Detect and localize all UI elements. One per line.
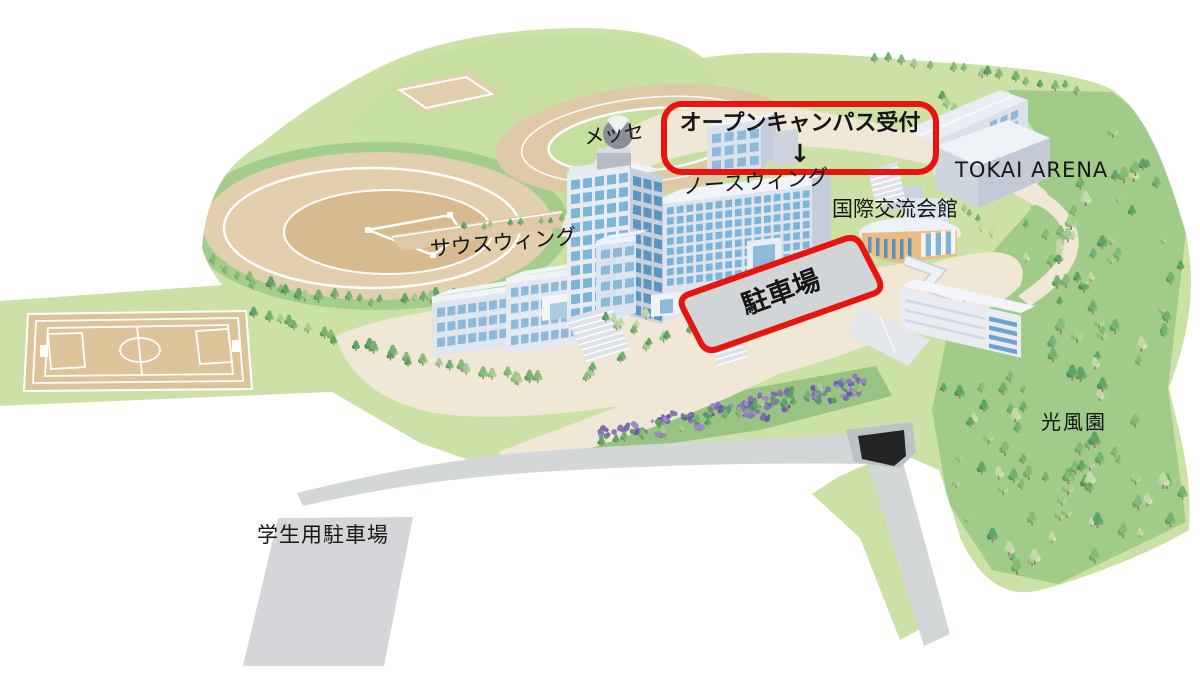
tunnel <box>846 422 916 468</box>
window <box>468 318 476 328</box>
pillar <box>931 232 936 256</box>
window <box>601 281 610 291</box>
window <box>479 301 487 311</box>
window <box>531 300 539 310</box>
window <box>654 210 662 221</box>
window <box>571 193 580 204</box>
window <box>696 203 703 211</box>
window <box>613 295 622 305</box>
label-messe: メッセ <box>583 121 645 147</box>
window <box>613 247 622 257</box>
soccer-goal-left <box>40 345 48 357</box>
window <box>686 214 693 222</box>
window <box>447 321 455 331</box>
window <box>654 252 662 263</box>
label-kofuen: 光風園 <box>1041 412 1107 432</box>
window <box>803 231 810 239</box>
window <box>619 201 628 212</box>
window <box>936 233 941 255</box>
window <box>884 239 888 258</box>
window <box>667 278 674 286</box>
window <box>531 316 539 326</box>
window <box>946 232 951 254</box>
window <box>437 322 445 332</box>
window <box>607 188 616 199</box>
map-illustration <box>0 0 1200 675</box>
window <box>716 272 723 280</box>
window <box>613 263 622 273</box>
window <box>696 275 703 283</box>
window <box>900 239 904 259</box>
window <box>583 206 592 217</box>
window <box>803 200 810 208</box>
window <box>633 204 641 215</box>
window <box>725 251 732 259</box>
window <box>633 176 641 187</box>
window <box>667 258 674 266</box>
window <box>511 319 519 329</box>
window <box>735 229 742 237</box>
window <box>644 193 652 204</box>
window <box>677 236 684 244</box>
window <box>479 331 487 341</box>
window <box>783 213 790 221</box>
window <box>667 217 674 225</box>
soccer-ground <box>24 311 252 391</box>
window <box>696 234 703 242</box>
window <box>654 267 662 278</box>
window <box>803 241 810 249</box>
window <box>511 287 519 297</box>
window <box>696 224 703 232</box>
window <box>633 219 641 230</box>
window <box>868 237 872 253</box>
label-student-parking: 学生用駐車場 <box>257 525 389 546</box>
window <box>716 252 723 260</box>
base <box>365 227 371 233</box>
window <box>735 260 742 268</box>
window <box>696 264 703 272</box>
window <box>619 215 628 226</box>
window <box>783 203 790 211</box>
window <box>583 235 592 246</box>
window <box>677 246 684 254</box>
window <box>926 234 931 256</box>
window <box>686 235 693 243</box>
window <box>774 204 781 212</box>
window <box>793 201 800 209</box>
window <box>619 172 628 183</box>
window <box>725 200 732 208</box>
window <box>625 278 634 288</box>
window <box>745 197 752 205</box>
window <box>706 233 713 241</box>
window <box>583 192 592 203</box>
window <box>793 191 800 199</box>
window <box>876 238 880 256</box>
window <box>716 242 723 250</box>
window <box>735 239 742 247</box>
window <box>489 330 497 340</box>
window <box>754 206 761 214</box>
window <box>696 254 703 262</box>
window <box>706 263 713 271</box>
window <box>706 202 713 210</box>
window <box>571 294 580 305</box>
window <box>745 228 752 236</box>
window <box>601 249 610 259</box>
window <box>686 265 693 273</box>
window <box>706 273 713 281</box>
window <box>677 205 684 213</box>
window <box>531 332 539 342</box>
window <box>686 204 693 212</box>
window <box>583 177 592 188</box>
window <box>725 210 732 218</box>
window <box>595 190 604 201</box>
window <box>521 334 529 344</box>
window <box>654 281 662 292</box>
window <box>489 315 497 325</box>
window <box>735 209 742 217</box>
window <box>783 243 790 251</box>
window <box>725 230 732 238</box>
window <box>551 330 559 340</box>
hut-door <box>660 299 673 314</box>
window <box>571 179 580 190</box>
window <box>677 256 684 264</box>
window <box>561 328 569 338</box>
window <box>447 336 455 346</box>
window <box>468 303 476 313</box>
campus-map: メッセ サウスウィング ノースウィング 国際交流会館 TOKAI ARENA 光… <box>0 0 1200 675</box>
window <box>716 201 723 209</box>
window <box>583 263 592 274</box>
window <box>725 240 732 248</box>
window <box>468 333 476 343</box>
window <box>595 219 604 230</box>
window <box>803 190 810 198</box>
window <box>633 190 641 201</box>
window <box>607 174 616 185</box>
window <box>783 223 790 231</box>
window <box>754 196 761 204</box>
window <box>745 218 752 226</box>
window <box>774 214 781 222</box>
pillar <box>941 231 946 255</box>
window <box>706 243 713 251</box>
window <box>521 286 529 296</box>
label-tokai-arena: TOKAI ARENA <box>955 160 1108 181</box>
pillar <box>921 233 926 257</box>
window <box>677 277 684 285</box>
window <box>511 303 519 313</box>
window <box>716 231 723 239</box>
window <box>716 262 723 270</box>
dome-pedestal-top <box>597 148 631 153</box>
window <box>667 268 674 276</box>
window <box>783 233 790 241</box>
window <box>654 181 662 192</box>
window <box>541 331 549 341</box>
window <box>571 251 580 262</box>
kiosk-hut <box>651 292 681 317</box>
window <box>541 283 549 293</box>
window <box>667 227 674 235</box>
window <box>644 278 652 289</box>
window <box>667 237 674 245</box>
window <box>764 215 771 223</box>
window <box>696 244 703 252</box>
pillar <box>951 230 956 254</box>
window <box>725 220 732 228</box>
window <box>437 337 445 347</box>
window <box>619 187 628 198</box>
window <box>783 192 790 200</box>
window <box>774 194 781 202</box>
soccer-goal-right <box>232 340 240 352</box>
window <box>803 210 810 218</box>
window <box>706 222 713 230</box>
window <box>595 204 604 215</box>
window <box>437 307 445 317</box>
window <box>686 225 693 233</box>
window <box>654 238 662 249</box>
window <box>735 198 742 206</box>
window <box>686 255 693 263</box>
window <box>754 216 761 224</box>
window <box>677 226 684 234</box>
window <box>644 207 652 218</box>
window <box>489 300 497 310</box>
window <box>458 334 466 344</box>
window <box>908 238 912 258</box>
window <box>458 304 466 314</box>
window <box>521 302 529 312</box>
window <box>595 176 604 187</box>
window <box>716 211 723 219</box>
window <box>583 220 592 231</box>
window <box>625 294 634 304</box>
window <box>725 261 732 269</box>
window <box>774 224 781 232</box>
window <box>644 236 652 247</box>
window <box>654 195 662 206</box>
window <box>735 249 742 257</box>
window <box>745 207 752 215</box>
window <box>716 221 723 229</box>
window <box>571 265 580 276</box>
window <box>479 316 487 326</box>
window <box>706 253 713 261</box>
window <box>644 264 652 275</box>
window <box>511 335 519 345</box>
window <box>654 224 662 235</box>
window <box>458 319 466 329</box>
window <box>677 267 684 275</box>
window <box>521 318 529 328</box>
window <box>764 205 771 213</box>
window <box>531 284 539 294</box>
window <box>644 293 652 304</box>
window <box>754 227 761 235</box>
window <box>551 282 559 292</box>
window <box>696 213 703 221</box>
window <box>764 195 771 203</box>
window <box>601 265 610 275</box>
window <box>583 278 592 289</box>
window <box>686 245 693 253</box>
base <box>447 212 453 218</box>
window <box>793 232 800 240</box>
window <box>583 292 592 303</box>
window <box>793 212 800 220</box>
window <box>735 219 742 227</box>
window <box>706 212 713 220</box>
window <box>667 207 674 215</box>
window <box>793 242 800 250</box>
window <box>803 221 810 229</box>
window <box>686 276 693 284</box>
annotation-open-campus-reception: オープンキャンパス受付 <box>664 113 936 135</box>
label-kokusai-koryu-kaikan: 国際交流会館 <box>832 199 958 220</box>
window <box>892 239 896 259</box>
down-arrow-icon: ↓ <box>664 141 936 166</box>
window <box>667 247 674 255</box>
window <box>644 178 652 189</box>
window <box>601 297 610 307</box>
window <box>571 279 580 290</box>
window <box>613 279 622 289</box>
window <box>625 262 634 272</box>
window <box>571 208 580 219</box>
window <box>644 250 652 261</box>
window <box>447 306 455 316</box>
window <box>607 203 616 214</box>
window <box>583 249 592 260</box>
soccer-field <box>24 311 252 391</box>
window <box>677 216 684 224</box>
window <box>625 246 634 256</box>
window <box>607 217 616 228</box>
window <box>764 225 771 233</box>
window <box>793 222 800 230</box>
